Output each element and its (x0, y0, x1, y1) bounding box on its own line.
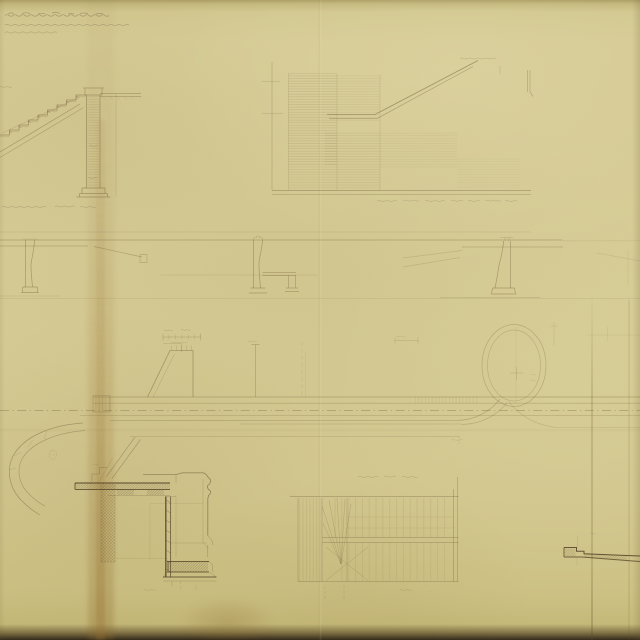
abutment-hatch (93, 396, 110, 413)
title-block-handwriting (5, 12, 129, 33)
masonry-detail-view (75, 459, 217, 591)
stringer-soffit (0, 104, 80, 152)
lower-flight-treads (340, 543, 448, 581)
longitudinal-section-view (0, 232, 640, 299)
stair-tread-soffits (0, 97, 86, 137)
brick-hatch-e (289, 165, 381, 190)
stair-steps-profile (0, 95, 86, 135)
brick-hatch-d (380, 132, 457, 168)
brick-hatch-c (325, 132, 380, 165)
sectional-elevation-view (262, 58, 533, 202)
pier-coursing-hatch (87, 96, 100, 186)
pier-cap (83, 88, 104, 95)
brick-hatch-b (337, 75, 380, 122)
caption-scribble-plan (358, 476, 418, 478)
pier-2 (249, 236, 299, 293)
plan-divider (252, 345, 260, 398)
stair-section-view (0, 86, 141, 207)
spur-diagonal (107, 437, 141, 479)
pier-1 (21, 239, 39, 293)
turntable-circle (482, 325, 546, 407)
stair-plan-view (290, 476, 459, 601)
sleeper-ticks (413, 397, 477, 403)
pencil-blob (49, 450, 57, 459)
curved-spur (9, 423, 85, 515)
bearing-block-2 (147, 490, 164, 496)
pier-3 (491, 238, 516, 295)
drawing-ink-layer (0, 0, 640, 640)
pier-2-support (285, 276, 299, 292)
small-steps (92, 468, 107, 482)
fill-stipple (116, 508, 168, 558)
wall-strip-hatch (298, 498, 322, 582)
bearing-block-1 (117, 490, 134, 496)
pier-base (77, 188, 111, 197)
curve-leader (99, 459, 113, 482)
brace-diagonal (94, 247, 142, 258)
right-post (528, 70, 534, 97)
caption-scribble-left (2, 206, 96, 208)
scanned-drawing: Aged scanned architectural engineering d… (0, 0, 640, 640)
ground-line (100, 94, 141, 97)
wall-crosshatch (101, 484, 115, 562)
ramp-outline (148, 342, 194, 397)
coping-detail-view (564, 533, 640, 566)
caption-scribble-center (377, 200, 517, 202)
brick-hatch-f (457, 158, 520, 190)
footing (163, 562, 217, 582)
slab-hatch (75, 483, 170, 490)
upper-flight-treads (330, 498, 448, 538)
